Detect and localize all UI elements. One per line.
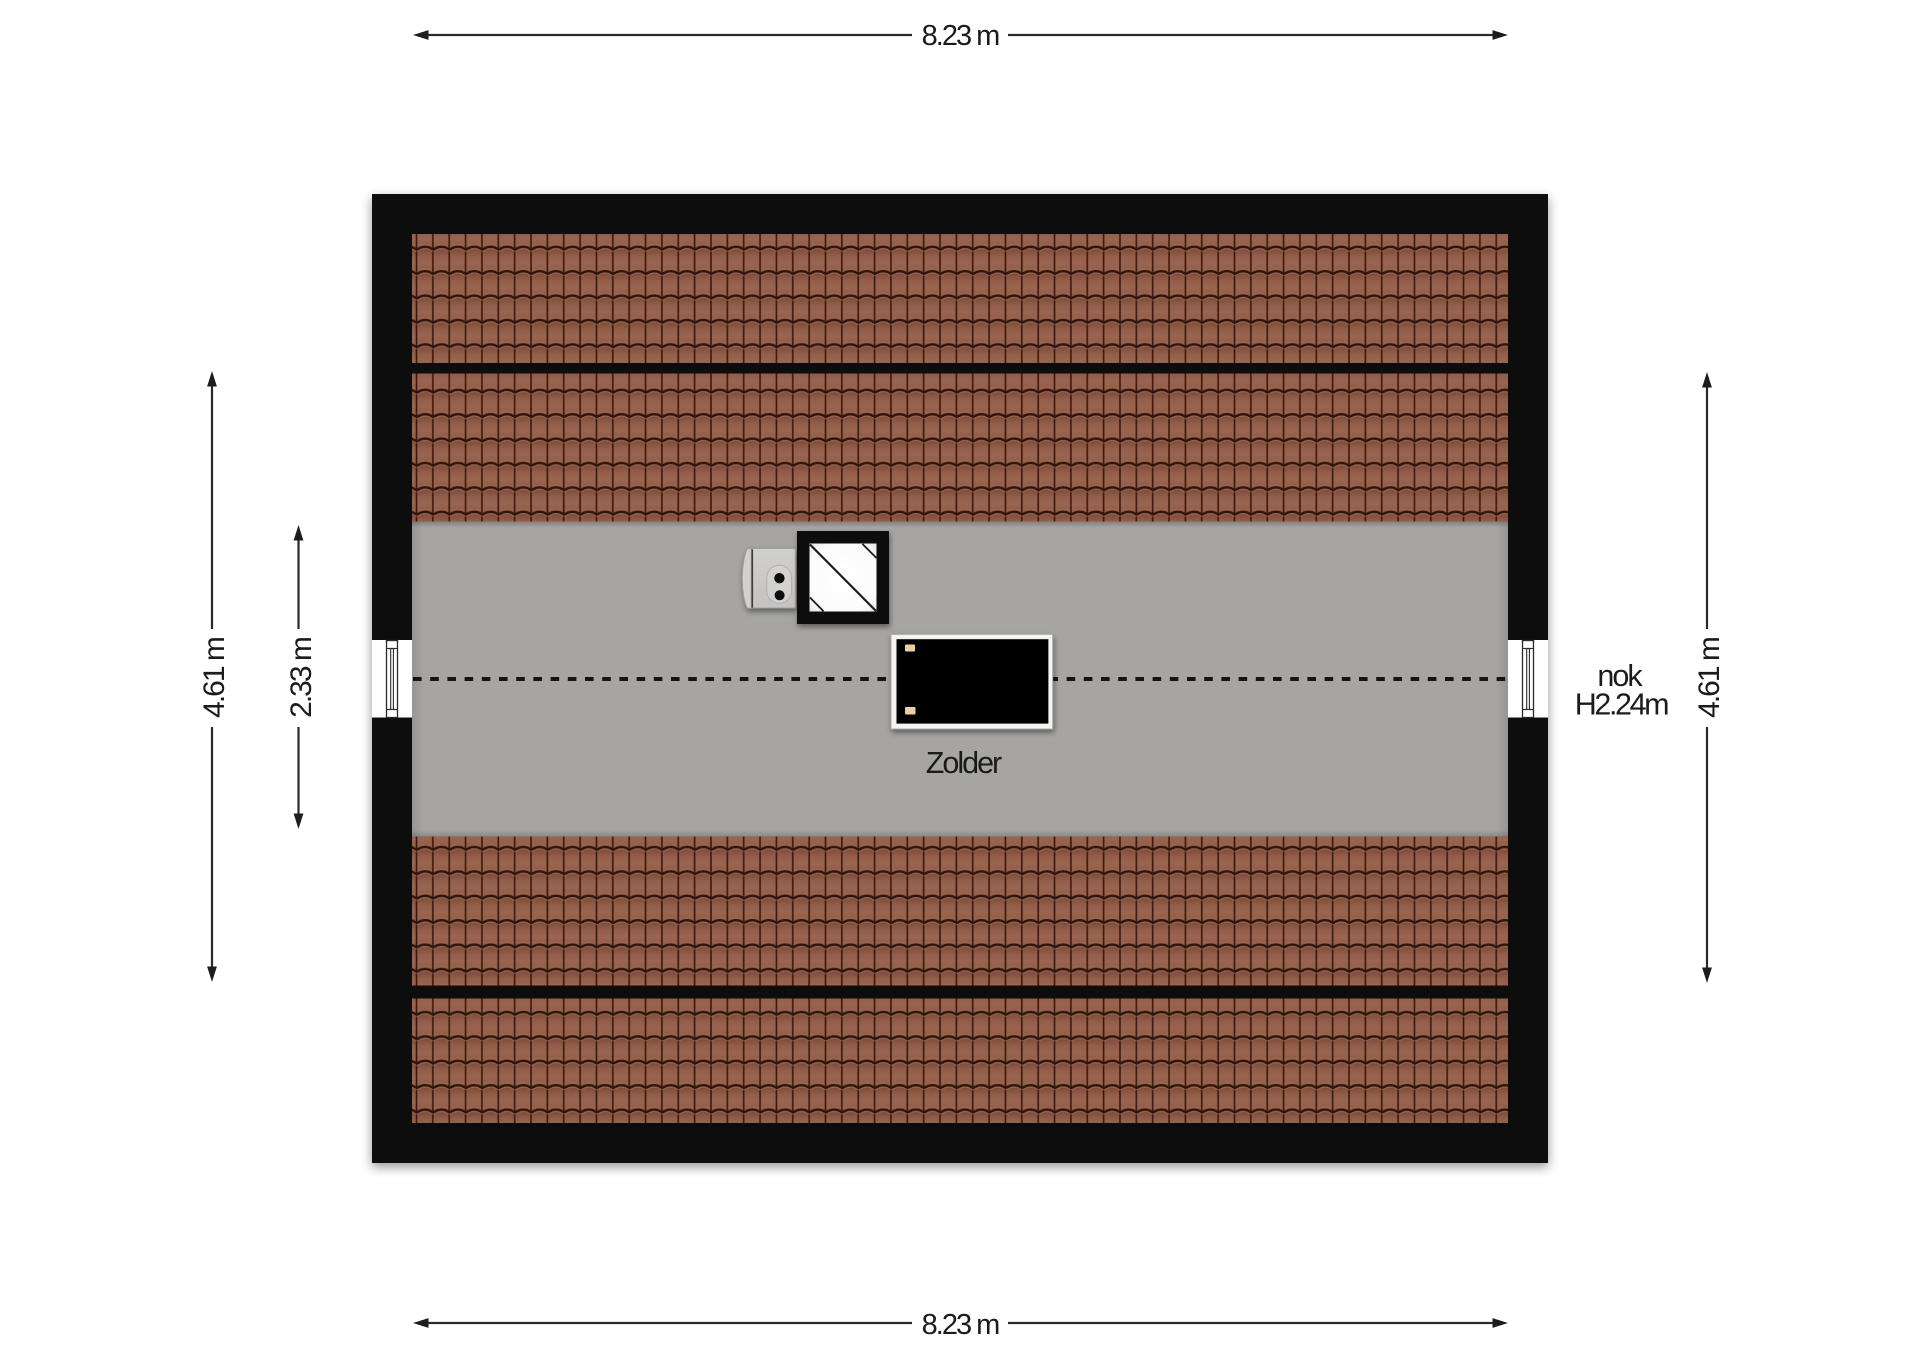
svg-text:2.33 m: 2.33 m [285, 637, 318, 718]
svg-text:8.23 m: 8.23 m [922, 1309, 999, 1341]
svg-text:H2.24m: H2.24m [1575, 688, 1668, 722]
svg-text:4.61 m: 4.61 m [198, 637, 231, 718]
svg-text:4.61 m: 4.61 m [1693, 637, 1726, 718]
svg-text:8.23 m: 8.23 m [922, 20, 999, 52]
svg-text:Zolder: Zolder [926, 746, 1002, 780]
